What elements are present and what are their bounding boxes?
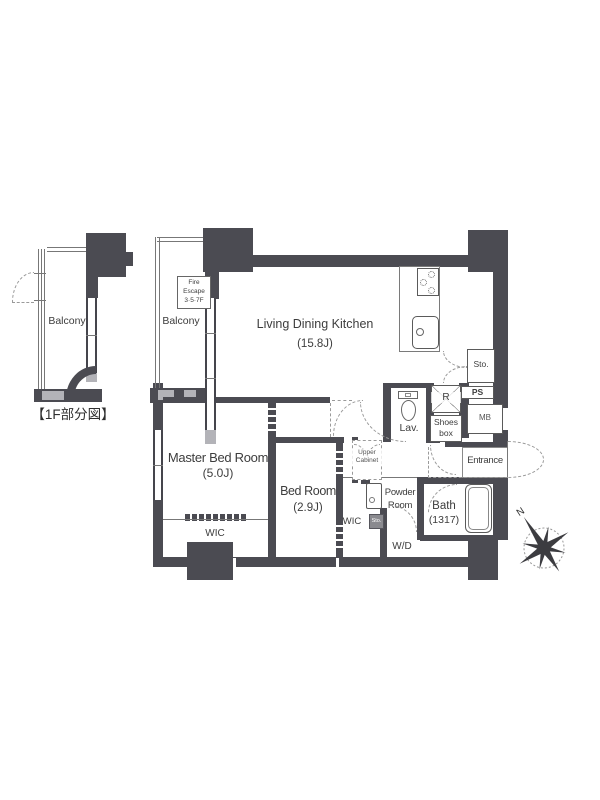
- master-bedroom-label: Master Bed Room: [166, 451, 270, 465]
- door-swing-arc: [12, 272, 34, 302]
- pillar: [86, 233, 126, 277]
- balcony-railing-line: [159, 237, 160, 388]
- sink-faucet-icon: [416, 328, 424, 336]
- lavatory-door-arc: [360, 402, 406, 442]
- balcony-label: Balcony: [45, 316, 89, 328]
- hall-boundary-dash: [330, 403, 331, 437]
- bedroom-top-wall: [276, 437, 344, 443]
- refrigerator-label: R: [431, 392, 461, 403]
- bedroom-sliding-door: [336, 446, 343, 474]
- entrance-opening-line: [507, 441, 508, 478]
- ldk-label: Living Dining Kitchen: [240, 318, 390, 332]
- bottom-wall-light-segment: [42, 391, 64, 400]
- hall-door-arc: [333, 400, 363, 436]
- master-sliding-door: [268, 403, 276, 433]
- master-bedroom-size-label: (5.0J): [166, 467, 270, 480]
- wall-joint-gap: [336, 558, 339, 567]
- stove-burner-icon: [428, 287, 435, 294]
- balcony-top-edge: [47, 247, 86, 248]
- stove-burner-icon: [428, 271, 435, 278]
- window-end-segment: [205, 430, 216, 444]
- shoes-door-arc: [430, 445, 456, 475]
- shoes-box-label: Shoes box: [430, 417, 462, 438]
- window-tick: [205, 378, 216, 379]
- stove-burner-icon: [420, 279, 427, 286]
- window-tick: [153, 465, 163, 466]
- balcony-label: Balcony: [157, 316, 205, 328]
- small-storage-label: Sto.: [369, 518, 384, 524]
- right-wall-upper: [493, 230, 508, 380]
- compass-rose: N: [501, 500, 587, 592]
- entrance-door-arc: [508, 441, 544, 478]
- balcony-top-edge: [157, 237, 203, 238]
- compass-north-label: N: [515, 506, 527, 519]
- balcony-railing-line: [41, 249, 42, 389]
- master-wic-label: WIC: [180, 528, 250, 539]
- genkan-step-line: [428, 477, 508, 478]
- wall-stub: [86, 277, 98, 298]
- balcony-railing-line: [155, 237, 156, 388]
- bedroom-label: Bed Room: [277, 485, 339, 499]
- balcony-railing-line: [38, 249, 39, 389]
- upper-cabinet-label: Upper Cabinet: [352, 449, 382, 466]
- bath-size-label: (1317): [424, 515, 464, 527]
- powder-top-line: [382, 477, 417, 478]
- entrance-label: Entrance: [462, 456, 508, 466]
- lavatory-top-wall: [388, 383, 430, 388]
- floor-plan-page: Balcony 【1F部分図】: [0, 0, 600, 800]
- door-swing-line: [12, 302, 34, 303]
- pipe-space-label: PS: [461, 388, 494, 397]
- window-tick: [86, 335, 97, 336]
- balcony-window: [205, 298, 216, 444]
- bath-bottom-wall: [420, 535, 495, 541]
- balcony-top-edge: [47, 251, 86, 252]
- ldk-size-label: (15.8J): [240, 338, 390, 351]
- bedroom-size-label: (2.9J): [277, 502, 339, 515]
- pillar-notch: [126, 252, 133, 266]
- bath-door-arc: [428, 484, 457, 513]
- master-door-dash: [332, 400, 352, 401]
- storage-label: Sto.: [467, 360, 495, 369]
- pillar-bottom-right: [468, 538, 498, 580]
- pillar-bottom-left: [187, 542, 233, 580]
- fire-escape-label: Fire Escape 3·5·7F: [177, 279, 211, 305]
- left-wall-lower: [153, 500, 163, 567]
- railing-tick: [34, 273, 46, 274]
- master-wic-divider: [163, 519, 268, 520]
- vanity-bowl-icon: [369, 497, 375, 503]
- washer-dryer-label: W/D: [386, 541, 418, 552]
- master-top-wall: [163, 397, 330, 403]
- railing-tick: [34, 300, 46, 301]
- wall-joint-gap: [233, 558, 236, 567]
- bathtub-inner: [468, 487, 489, 530]
- bath-top-wall: [417, 477, 497, 484]
- window-tick: [205, 333, 216, 334]
- storage-door-arc: [443, 366, 467, 383]
- meter-box-label: MB: [467, 414, 503, 423]
- balcony-top-edge: [157, 241, 203, 242]
- bedroom-wic-label: WIC: [338, 517, 366, 527]
- toilet-tank-button: [405, 393, 411, 397]
- vanity-icon: [366, 483, 382, 509]
- partial-plan-caption: 【1F部分図】: [18, 408, 128, 423]
- genkan-step-line: [428, 447, 429, 478]
